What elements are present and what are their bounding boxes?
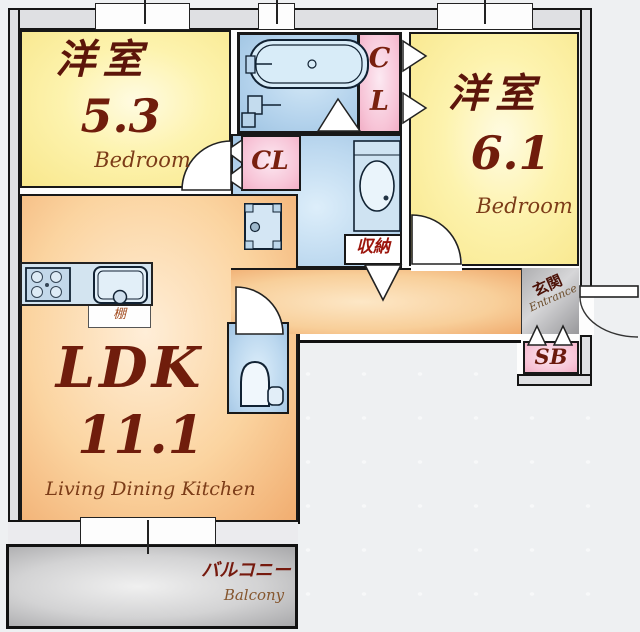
ldk-type: Living Dining Kitchen (38, 480, 263, 499)
ldk-name: LDK (35, 340, 225, 396)
wall-corridor-bottom (289, 334, 521, 343)
floor-plan: 洋室 5.3 Bedroom 洋室 6.1 Bedroom LDK 11.1 L… (0, 0, 640, 632)
room-toilet (227, 322, 289, 414)
bedroom-b-type: Bedroom (472, 196, 577, 217)
window-bedroom-a (95, 3, 190, 30)
balcony-label-en: Balcony (218, 588, 290, 603)
wall-left (8, 8, 20, 546)
window-tick (484, 0, 486, 24)
window-tick (144, 0, 146, 24)
shelf-label: 棚 (88, 308, 151, 321)
ldk-area: 11.1 (48, 410, 233, 462)
wall-sb-bottom (517, 374, 592, 386)
bedroom-a-type: Bedroom (80, 150, 205, 171)
balcony-label: バルコニー (198, 562, 294, 580)
closet-a-label: CL (241, 148, 299, 173)
closet-b-label-c: C (357, 45, 402, 72)
window-tick (276, 0, 278, 24)
bedroom-a-name: 洋室 (30, 40, 175, 80)
bedroom-b-name: 洋室 (420, 74, 570, 114)
window-tick (147, 520, 149, 554)
shoe-box-label: SB (523, 346, 579, 367)
bedroom-a-area: 5.3 (48, 93, 193, 139)
bedroom-b-area: 6.1 (438, 130, 583, 176)
room-bathroom (237, 32, 374, 134)
storage-label: 収納 (346, 239, 400, 256)
entrance-door-gap (578, 288, 594, 335)
closet-b-label-l: L (357, 88, 402, 115)
